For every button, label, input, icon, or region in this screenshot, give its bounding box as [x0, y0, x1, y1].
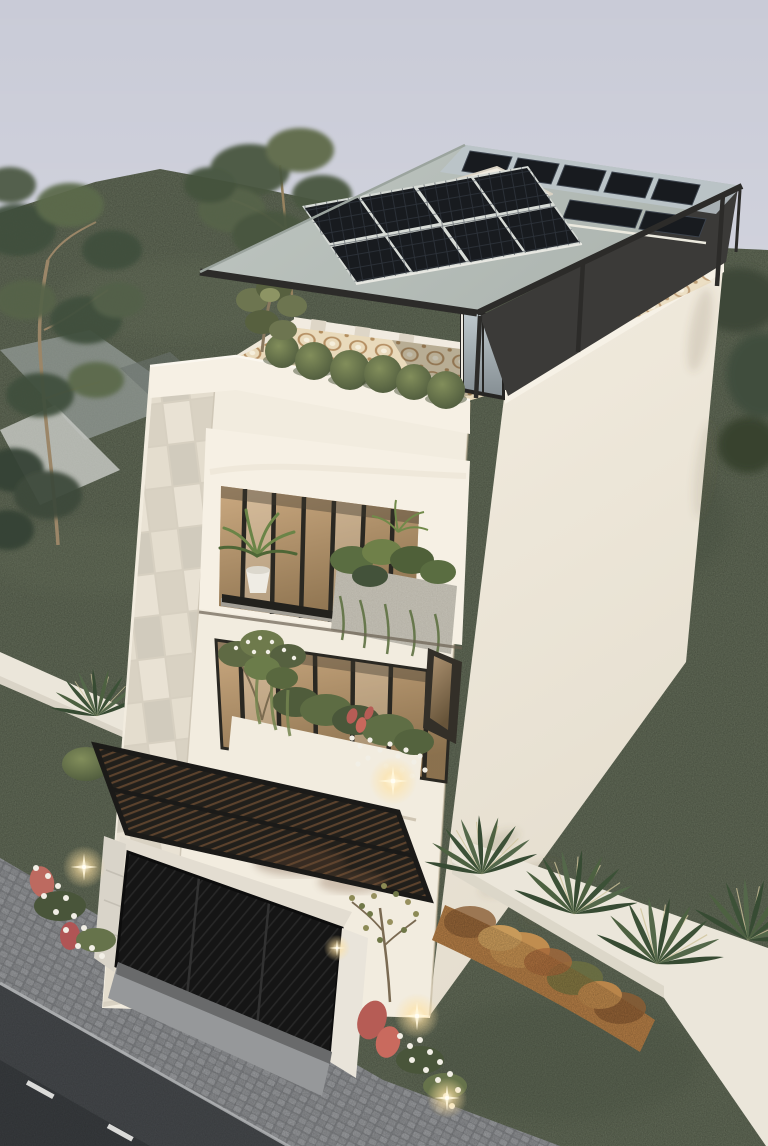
balcony-light: [369, 757, 417, 805]
architectural-render: [0, 0, 768, 1146]
wall-lamp-glow: [324, 935, 350, 961]
uplight: [427, 1078, 468, 1119]
uplight: [394, 993, 440, 1039]
render-canvas: [0, 0, 768, 1146]
uplight: [62, 845, 105, 888]
corner-window: [423, 648, 462, 744]
